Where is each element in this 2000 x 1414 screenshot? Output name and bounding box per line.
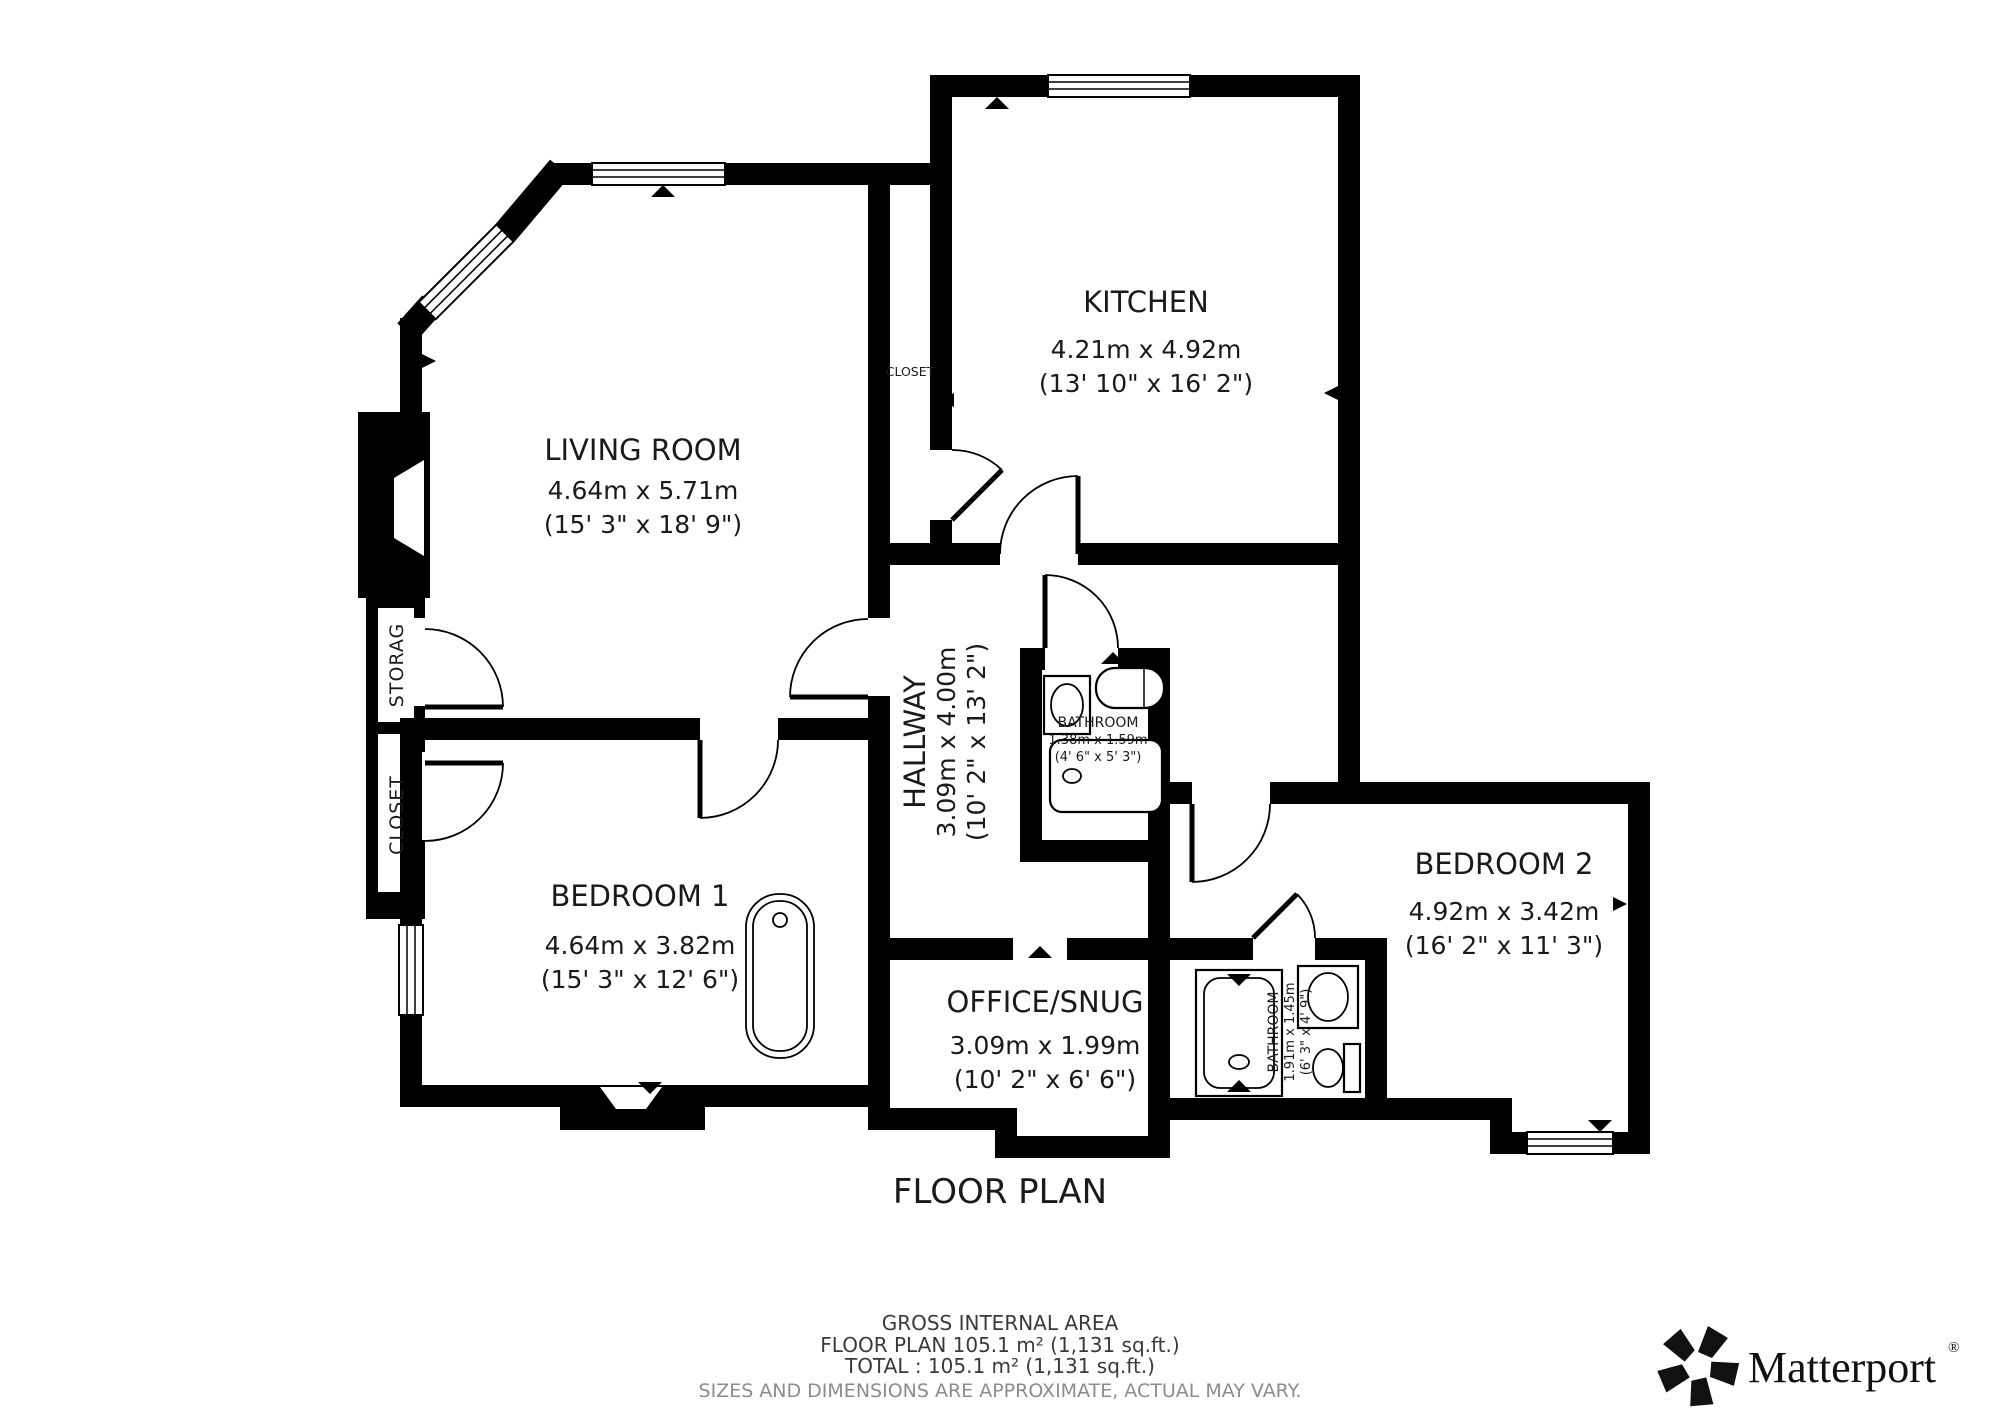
office-snug-label: OFFICE/SNUG 3.09m x 1.99m (10' 2" x 6' 6… xyxy=(947,985,1144,1094)
closet-lower-name: CLOSET xyxy=(386,775,408,855)
office-snug-metric: 3.09m x 1.99m xyxy=(950,1031,1141,1060)
kitchen-metric: 4.21m x 4.92m xyxy=(1051,335,1242,364)
bathroom1-name: BATHROOM xyxy=(1057,715,1138,731)
bedroom1-left-window xyxy=(399,925,423,1015)
bathroom1-imperial: (4' 6" x 5' 3") xyxy=(1055,750,1142,765)
bathroom1-metric: 1.38m x 1.59m xyxy=(1048,733,1147,748)
matterport-logo: Matterport ® xyxy=(1650,1325,1959,1414)
hallway-label: HALLWAY 3.09m x 4.00m (10' 2" x 13' 2") xyxy=(898,643,991,841)
gross-internal-area-heading: GROSS INTERNAL AREA xyxy=(882,1311,1119,1335)
kitchen-imperial: (13' 10" x 16' 2") xyxy=(1039,369,1253,398)
matterport-pinwheel-icon xyxy=(1650,1325,1745,1414)
hallway-metric: 3.09m x 4.00m xyxy=(932,647,961,838)
footer-area-summary: GROSS INTERNAL AREA FLOOR PLAN 105.1 m² … xyxy=(699,1311,1302,1402)
bedroom2-metric: 4.92m x 3.42m xyxy=(1409,897,1600,926)
storage-label: STORAG xyxy=(386,623,408,707)
bedroom1-imperial: (15' 3" x 12' 6") xyxy=(541,965,739,994)
matterport-wordmark: Matterport xyxy=(1748,1343,1936,1392)
office-snug-imperial: (10' 2" x 6' 6") xyxy=(954,1065,1136,1094)
disclaimer-text: SIZES AND DIMENSIONS ARE APPROXIMATE, AC… xyxy=(699,1380,1302,1402)
closet-door xyxy=(425,763,503,841)
registered-mark: ® xyxy=(1948,1340,1959,1356)
hallway-imperial: (10' 2" x 13' 2") xyxy=(962,643,991,841)
living-room-metric: 4.64m x 5.71m xyxy=(548,476,739,505)
bathroom2-name: BATHROOM xyxy=(1266,991,1282,1072)
bedroom2-wall-arrow-icon xyxy=(1613,897,1627,911)
bedroom2-bottom-window xyxy=(1527,1132,1613,1154)
room-labels: KITCHEN 4.21m x 4.92m (13' 10" x 16' 2")… xyxy=(386,285,1603,1094)
hallway-name: HALLWAY xyxy=(898,675,932,809)
floor-plan-page: KITCHEN 4.21m x 4.92m (13' 10" x 16' 2")… xyxy=(0,0,2000,1414)
living-room-top-window xyxy=(592,163,725,185)
kitchen-window-arrow-icon xyxy=(985,97,1009,109)
bedroom1-metric: 4.64m x 3.82m xyxy=(545,931,736,960)
bathroom2-label: BATHROOM 1.91m x 1.45m (6' 3" x 4' 9") xyxy=(1266,982,1314,1081)
office-door-arrow-icon xyxy=(1028,946,1052,958)
fireplace-notches xyxy=(394,460,662,1109)
living-window-arrow-icon xyxy=(651,185,675,197)
bedroom2-door xyxy=(1192,804,1270,882)
living-left-arrow-icon xyxy=(422,354,436,368)
bathroom2-door xyxy=(1253,894,1315,938)
closet-lower-label: CLOSET xyxy=(386,775,408,855)
bedroom2-label: BEDROOM 2 4.92m x 3.42m (16' 2" x 11' 3"… xyxy=(1405,847,1603,960)
office-snug-name: OFFICE/SNUG xyxy=(947,985,1144,1019)
floor-plan-drawing: KITCHEN 4.21m x 4.92m (13' 10" x 16' 2")… xyxy=(0,0,2000,1414)
bathroom2-metric: 1.91m x 1.45m xyxy=(1283,982,1298,1081)
bedroom1-label: BEDROOM 1 4.64m x 3.82m (15' 3" x 12' 6"… xyxy=(541,879,739,994)
bedroom2-imperial: (16' 2" x 11' 3") xyxy=(1405,931,1603,960)
plan-title: FLOOR PLAN xyxy=(893,1172,1107,1212)
bathroom1-label: BATHROOM 1.38m x 1.59m (4' 6" x 5' 3") xyxy=(1048,715,1147,765)
living-room-imperial: (15' 3" x 18' 9") xyxy=(544,510,742,539)
kitchen-right-arrow-icon xyxy=(1324,386,1338,400)
bathroom2-imperial: (6' 3" x 4' 9") xyxy=(1299,989,1314,1076)
living-room-bay-window xyxy=(419,225,514,320)
bedroom1-door xyxy=(700,740,778,818)
total-area-line: TOTAL : 105.1 m² (1,131 sq.ft.) xyxy=(844,1354,1155,1378)
bedroom2-window-arrow-icon xyxy=(1588,1120,1612,1132)
kitchen-label: KITCHEN 4.21m x 4.92m (13' 10" x 16' 2") xyxy=(1039,285,1253,398)
living-room-label: LIVING ROOM 4.64m x 5.71m (15' 3" x 18' … xyxy=(544,433,742,539)
storage-door xyxy=(425,629,503,707)
bathroom1-door xyxy=(1045,575,1118,648)
bedroom1-bathtub xyxy=(746,894,814,1058)
bathroom1-toilet xyxy=(1096,668,1164,708)
storage-name: STORAG xyxy=(386,623,408,707)
kitchen-door xyxy=(1000,476,1078,554)
closet-upper-label: CLOSET xyxy=(886,364,935,379)
kitchen-top-window xyxy=(1048,75,1190,97)
living-room-name: LIVING ROOM xyxy=(544,433,741,467)
bedroom2-name: BEDROOM 2 xyxy=(1414,847,1593,881)
bathroom2-toilet xyxy=(1313,1044,1360,1092)
bedroom1-name: BEDROOM 1 xyxy=(550,879,729,913)
closet-upper-door xyxy=(952,450,1002,520)
kitchen-name: KITCHEN xyxy=(1083,285,1209,319)
living-room-door xyxy=(790,619,868,697)
